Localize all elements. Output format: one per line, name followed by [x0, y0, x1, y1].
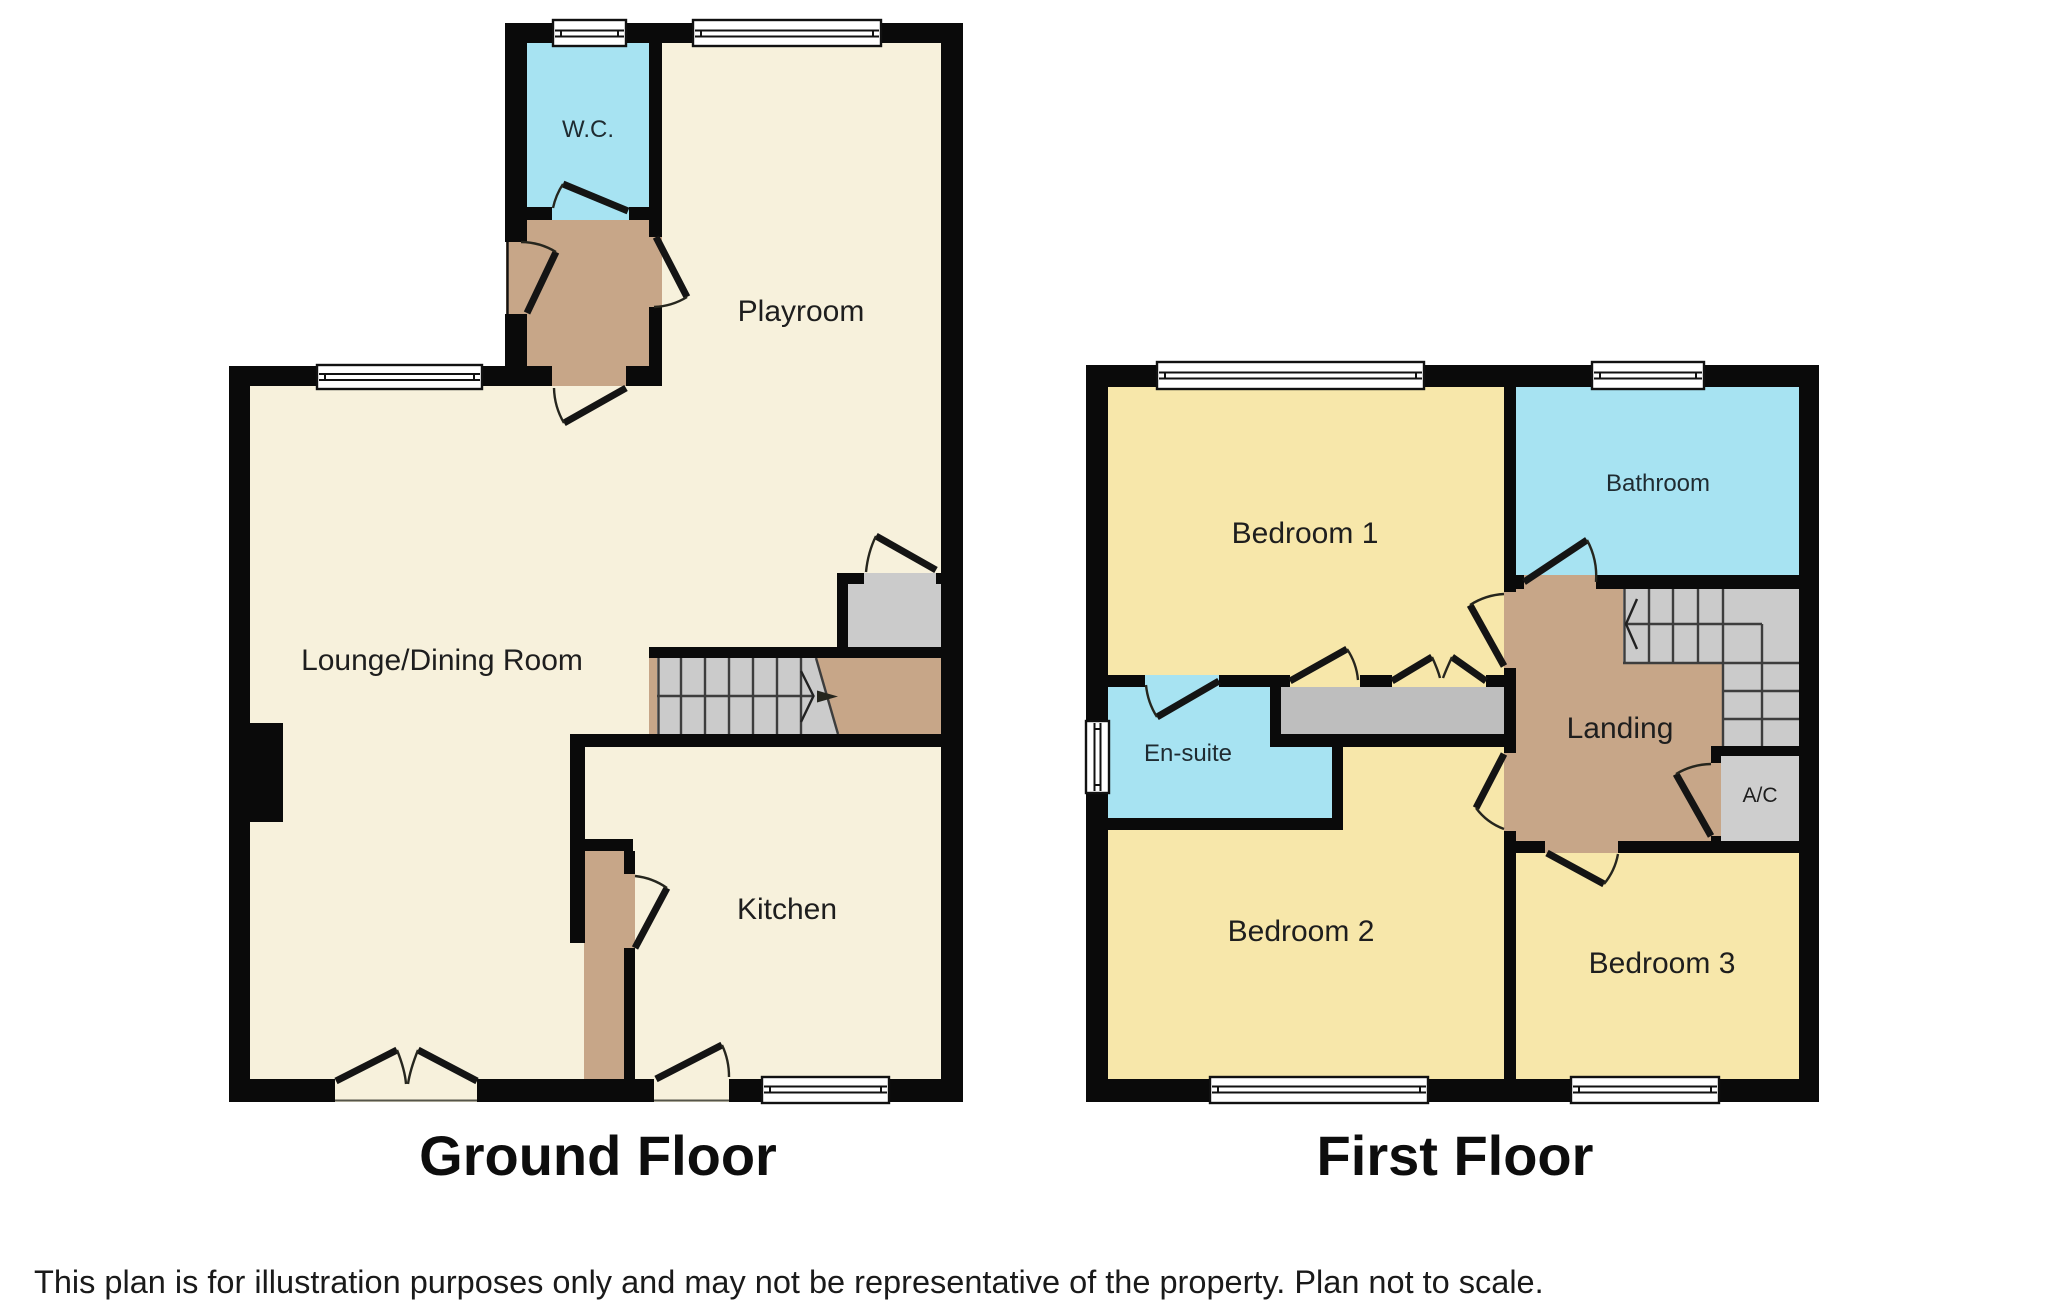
svg-text:First Floor: First Floor: [1317, 1124, 1594, 1187]
svg-text:Kitchen: Kitchen: [737, 893, 837, 926]
svg-text:W.C.: W.C.: [562, 116, 614, 143]
svg-text:Playroom: Playroom: [738, 295, 865, 328]
svg-text:Bedroom 2: Bedroom 2: [1228, 915, 1375, 948]
svg-text:This plan is for illustration: This plan is for illustration purposes o…: [34, 1264, 1544, 1300]
svg-text:Landing: Landing: [1567, 712, 1674, 745]
svg-text:A/C: A/C: [1742, 784, 1777, 807]
svg-text:En-suite: En-suite: [1144, 740, 1232, 767]
svg-text:Bathroom: Bathroom: [1606, 470, 1710, 497]
svg-text:Bedroom 1: Bedroom 1: [1232, 517, 1379, 550]
svg-text:Lounge/Dining Room: Lounge/Dining Room: [301, 644, 583, 677]
svg-text:Bedroom 3: Bedroom 3: [1589, 947, 1736, 980]
svg-text:Ground Floor: Ground Floor: [419, 1124, 777, 1187]
